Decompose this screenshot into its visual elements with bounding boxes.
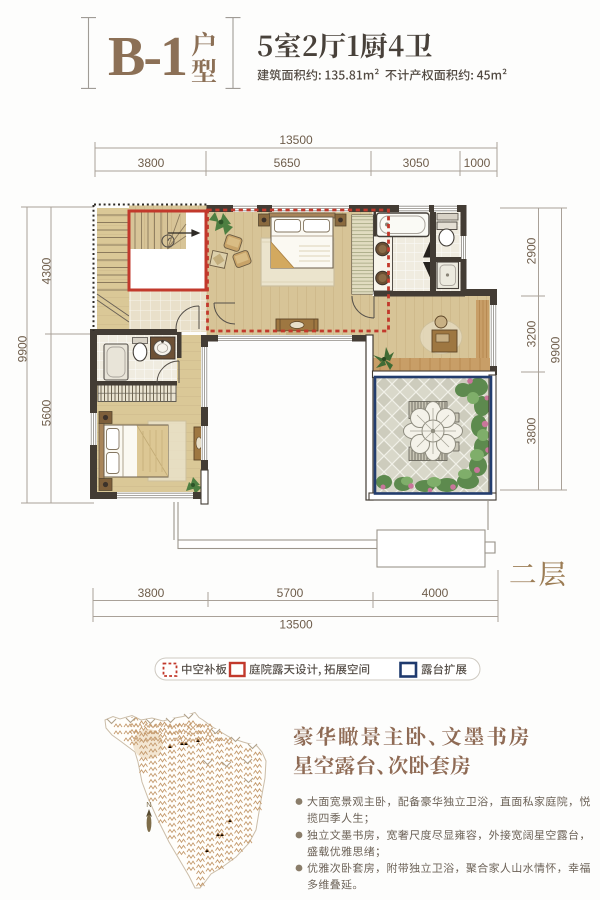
svg-text:13500: 13500 [279, 618, 313, 632]
svg-text:B-1: B-1 [108, 26, 186, 88]
svg-text:3800: 3800 [138, 156, 165, 170]
svg-text:3200: 3200 [525, 320, 539, 347]
svg-text:5700: 5700 [277, 586, 304, 600]
svg-text:5650: 5650 [274, 156, 301, 170]
svg-text:4300: 4300 [40, 257, 54, 284]
svg-text:13500: 13500 [279, 133, 313, 147]
svg-text:9900: 9900 [549, 336, 563, 363]
svg-text:9900: 9900 [16, 335, 30, 362]
svg-text:3800: 3800 [525, 417, 539, 444]
svg-text:5600: 5600 [40, 399, 54, 426]
svg-text:1000: 1000 [464, 156, 491, 170]
svg-text:3800: 3800 [138, 586, 165, 600]
svg-text:N: N [146, 800, 151, 809]
svg-text:3050: 3050 [403, 156, 430, 170]
svg-text:4000: 4000 [422, 586, 449, 600]
svg-text:2900: 2900 [525, 237, 539, 264]
